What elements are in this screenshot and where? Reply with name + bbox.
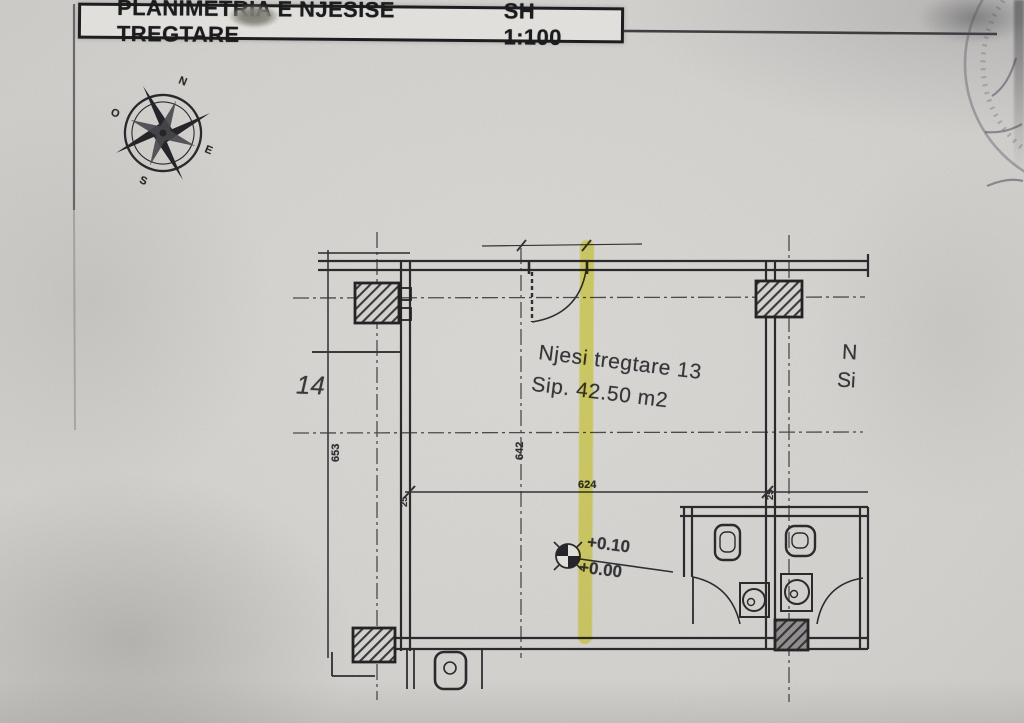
bathroom-fixtures [435,525,863,689]
adjacent-partial-label-1: N [841,341,857,366]
scan-edge-shadow [1014,0,1024,170]
scale-label: SH 1:100 [503,0,595,51]
door-swing-arc [532,271,586,322]
column-top-left [355,283,399,323]
column-top-right [756,281,802,317]
dim-depth-left-label: 653 [330,444,342,462]
frame-lines [74,4,997,430]
entrance-door [532,271,586,322]
toilet-icon [715,525,740,560]
scanned-floor-plan-page: PLANIMETRIA E NJESISE TREGTARE SH 1:100 [0,0,1024,723]
wall-thickness-left-label: 25 [399,496,410,507]
dim-depth-center-label: 642 [514,442,526,460]
scan-smudge [228,4,280,28]
wall-thickness-right-label: 25 [765,489,776,500]
scan-corner-smudge [918,0,1024,44]
toilet-icon [435,652,466,689]
adjacent-unit-label: 14 [295,370,325,402]
toilet-icon [786,526,815,556]
yellow-highlighter-line [578,240,594,644]
wc-door-arc-left [693,577,740,624]
column-bottom-left [353,628,395,662]
wc-door-arc-right [817,578,863,624]
page-title: PLANIMETRIA E NJESISE TREGTARE [117,0,504,50]
adjacent-partial-label-2: Si [836,369,856,394]
title-box: PLANIMETRIA E NJESISE TREGTARE SH 1:100 [78,3,624,44]
